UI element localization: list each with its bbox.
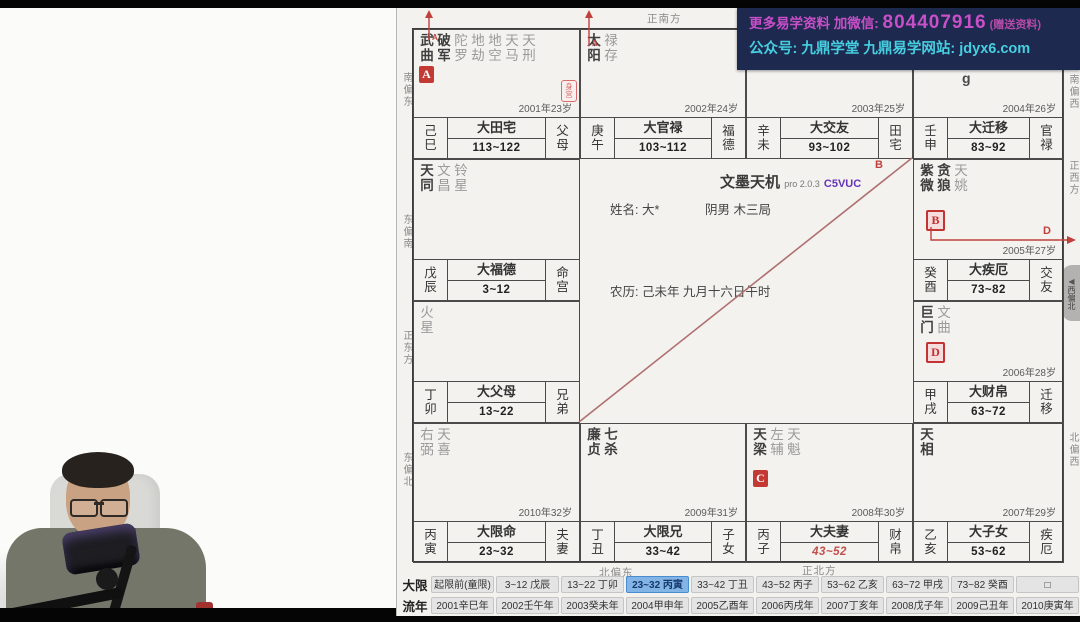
chart-name: 姓名: 大* xyxy=(610,199,659,218)
year-button-8[interactable]: 2009己丑年 xyxy=(951,597,1014,614)
star-天马: 天马 xyxy=(504,33,520,63)
side-nav-bubble[interactable]: ◀ 西偏北 xyxy=(1062,265,1080,321)
palace-name: 疾厄 xyxy=(1029,522,1063,562)
stem-branch: 丁卯 xyxy=(414,382,448,422)
year-age-label: 2006年28岁 xyxy=(1003,364,1056,379)
stem-branch: 丙寅 xyxy=(414,522,448,562)
palace-cell-迁移[interactable]: 巨门文曲D2006年28岁甲戌大财帛63~72迁移 xyxy=(913,301,1064,423)
year-button-5[interactable]: 2006丙戌年 xyxy=(756,597,819,614)
palace-strip: 丙寅大限命23~32夫妻 xyxy=(414,521,579,562)
year-age-label: 2001年23岁 xyxy=(519,100,572,115)
toolbar-row-大限: 大限起限前(童限)3~12 戊辰13~22 丁卯23~32 丙寅33~42 丁丑… xyxy=(399,575,1080,594)
arrow-up-icon xyxy=(425,10,433,18)
presenter-glasses xyxy=(70,499,128,514)
star-list: 火星 xyxy=(419,305,435,335)
year-age-label: 2005年27岁 xyxy=(1003,242,1056,257)
decade-palace: 大夫妻43~52 xyxy=(781,522,878,562)
palace-strip: 庚午大官禄103~112福德 xyxy=(581,117,745,158)
decade-palace: 大交友93~102 xyxy=(781,118,878,158)
star-list: 天相 xyxy=(919,427,935,457)
palace-strip: 辛未大交友93~102田宅 xyxy=(747,117,912,158)
palace-cell-夫妻[interactable]: 右弼天喜2010年32岁丙寅大限命23~32夫妻 xyxy=(413,423,580,563)
star-list: 右弼天喜 xyxy=(419,427,452,457)
stem-branch: 辛未 xyxy=(747,118,781,158)
star-紫微: 紫微 xyxy=(919,163,935,193)
letterbox-cam-bottom xyxy=(0,608,396,616)
star-list: 紫微贪狼天姚 xyxy=(919,163,969,193)
decade-age-range: 43~52 xyxy=(781,543,878,563)
stem-branch: 己巳 xyxy=(414,118,448,158)
year-age-label: 2007年29岁 xyxy=(1003,504,1056,519)
palace-strip: 丁丑大限兄33~42子女 xyxy=(581,521,745,562)
decade-button-1[interactable]: 3~12 戊辰 xyxy=(496,576,559,593)
year-button-7[interactable]: 2008戊子年 xyxy=(886,597,949,614)
decade-palace: 大官禄103~112 xyxy=(615,118,711,158)
decade-palace: 大子女53~62 xyxy=(948,522,1029,562)
app-version: pro 2.0.3 xyxy=(784,179,820,189)
decade-button-8[interactable]: 73~82 癸酉 xyxy=(951,576,1014,593)
decade-palace: 大财帛63~72 xyxy=(948,382,1029,422)
decade-age-range: 93~102 xyxy=(781,139,878,159)
decade-age-range: 83~92 xyxy=(948,139,1029,159)
star-天喜: 天喜 xyxy=(436,427,452,457)
star-天相: 天相 xyxy=(919,427,935,457)
decade-button-5[interactable]: 43~52 丙子 xyxy=(756,576,819,593)
palace-name: 命宫 xyxy=(545,260,579,300)
decade-palace-name: 大限兄 xyxy=(615,522,711,543)
year-age-label: 2010年32岁 xyxy=(519,504,572,519)
star-禄存: 禄存 xyxy=(603,33,619,63)
star-火星: 火星 xyxy=(419,305,435,335)
chevron-left-icon: ◀ xyxy=(1068,277,1074,286)
decade-palace-name: 大田宅 xyxy=(448,118,545,139)
star-list: 廉贞七杀 xyxy=(586,427,619,457)
star-武曲: 武曲 xyxy=(419,33,435,63)
star-天姚: 天姚 xyxy=(953,163,969,193)
decade-palace-name: 大财帛 xyxy=(948,382,1029,403)
arrow-up-icon xyxy=(585,10,593,18)
year-age-label: 2009年31岁 xyxy=(685,504,738,519)
palace-strip: 癸酉大疾厄73~82交友 xyxy=(914,259,1063,300)
star-文昌: 文昌 xyxy=(436,163,452,193)
year-button-9[interactable]: 2010庚寅年 xyxy=(1016,597,1079,614)
year-button-4[interactable]: 2005乙酉年 xyxy=(691,597,754,614)
year-button-1[interactable]: 2002壬午年 xyxy=(496,597,559,614)
chart-gender-bureau: 阴男 木三局 xyxy=(705,199,771,218)
decade-palace-name: 大子女 xyxy=(948,522,1029,543)
toolbar-row-label: 流年 xyxy=(399,596,431,615)
star-右弼: 右弼 xyxy=(419,427,435,457)
palace-strip: 戊辰大福德3~12命宫 xyxy=(414,259,579,300)
body-palace-seal: 身宫 xyxy=(561,80,577,102)
decade-age-range: 63~72 xyxy=(948,403,1029,423)
star-七杀: 七杀 xyxy=(603,427,619,457)
decade-button-0[interactable]: 起限前(童限) xyxy=(431,576,494,593)
star-贪狼: 贪狼 xyxy=(936,163,952,193)
star-地劫: 地劫 xyxy=(470,33,486,63)
decade-button-4[interactable]: 33~42 丁丑 xyxy=(691,576,754,593)
star-破军: 破军 xyxy=(436,33,452,63)
star-list: 天同文昌铃星 xyxy=(419,163,469,193)
star-陀罗: 陀罗 xyxy=(453,33,469,63)
palace-name: 父母 xyxy=(545,118,579,158)
toolbar-row-流年: 流年2001辛巳年2002壬午年2003癸未年2004甲申年2005乙酉年200… xyxy=(399,596,1080,615)
year-button-6[interactable]: 2007丁亥年 xyxy=(821,597,884,614)
star-天刑: 天刑 xyxy=(521,33,537,63)
decade-palace-name: 大福德 xyxy=(448,260,545,281)
decade-button-9[interactable]: □ xyxy=(1016,576,1079,593)
palace-strip: 丙子大夫妻43~52财帛 xyxy=(747,521,912,562)
star-巨门: 巨门 xyxy=(919,305,935,335)
palace-cell-命宫[interactable]: 天同文昌铃星戊辰大福德3~12命宫 xyxy=(413,159,580,301)
banner-line1: 更多易学资料 加微信: 804407916 (赠送资料) xyxy=(749,12,1080,34)
palace-name: 迁移 xyxy=(1029,382,1063,422)
direction-right-2: 正西方 xyxy=(1065,160,1080,196)
banner-line2: 公众号: 九鼎学堂 九鼎易学网站: jdyx6.com xyxy=(749,37,1080,58)
year-age-label: 2008年30岁 xyxy=(852,504,905,519)
decade-palace-name: 大夫妻 xyxy=(781,522,878,543)
star-list: 太阳禄存 xyxy=(586,33,619,63)
chart-lunar-date: 农历: 己未年 九月十六日午时 xyxy=(610,281,770,300)
decade-button-3[interactable]: 23~32 丙寅 xyxy=(626,576,689,593)
stem-branch: 戊辰 xyxy=(414,260,448,300)
decade-palace-name: 大父母 xyxy=(448,382,545,403)
decade-palace: 大父母13~22 xyxy=(448,382,545,422)
decade-age-range: 23~32 xyxy=(448,543,545,563)
star-list: 巨门文曲 xyxy=(919,305,952,335)
letterbox-top xyxy=(0,0,1080,8)
palace-name: 子女 xyxy=(711,522,745,562)
stem-branch: 壬申 xyxy=(914,118,948,158)
decade-palace: 大迁移83~92 xyxy=(948,118,1029,158)
year-age-label: 2003年25岁 xyxy=(852,100,905,115)
wechat-number: 804407916 xyxy=(883,12,987,33)
palace-name: 福德 xyxy=(711,118,745,158)
palace-name: 官禄 xyxy=(1029,118,1063,158)
year-button-0[interactable]: 2001辛巳年 xyxy=(431,597,494,614)
screen: 正南方 北偏东 正北方 南偏东 东偏南 正东方 东偏北 南偏西 正西方 北偏西 … xyxy=(0,0,1080,622)
star-天同: 天同 xyxy=(419,163,435,193)
palace-name: 兄弟 xyxy=(545,382,579,422)
decade-age-range: 103~112 xyxy=(615,139,711,159)
star-天梁: 天梁 xyxy=(752,427,768,457)
palace-name: 交友 xyxy=(1029,260,1063,300)
year-age-label: 2004年26岁 xyxy=(1003,100,1056,115)
watermark-partial: g xyxy=(962,70,971,86)
palace-strip: 壬申大迁移83~92官禄 xyxy=(914,117,1063,158)
year-button-2[interactable]: 2003癸未年 xyxy=(561,597,624,614)
palace-grid: 武曲破军陀罗地劫地空天马天刑A身宫2001年23岁己巳大田宅113~122父母太… xyxy=(412,28,1063,562)
period-toolbar: 大限起限前(童限)3~12 戊辰13~22 丁卯23~32 丙寅33~42 丁丑… xyxy=(399,575,1080,617)
decade-palace-name: 大疾厄 xyxy=(948,260,1029,281)
arrow-right-icon xyxy=(1067,236,1076,244)
decade-palace-name: 大迁移 xyxy=(948,118,1029,139)
stem-branch: 丙子 xyxy=(747,522,781,562)
decade-palace: 大福德3~12 xyxy=(448,260,545,300)
toolbar-row-label: 大限 xyxy=(399,575,431,594)
palace-strip: 己巳大田宅113~122父母 xyxy=(414,117,579,158)
star-地空: 地空 xyxy=(487,33,503,63)
decade-button-6[interactable]: 53~62 乙亥 xyxy=(821,576,884,593)
letterbox-bottom xyxy=(0,616,1080,622)
decade-palace: 大疾厄73~82 xyxy=(948,260,1029,300)
decade-age-range: 53~62 xyxy=(948,543,1029,563)
palace-cell-交友[interactable]: 紫微贪狼天姚B2005年27岁癸酉大疾厄73~82交友 xyxy=(913,159,1064,301)
palace-name: 财帛 xyxy=(878,522,912,562)
decade-age-range: 113~122 xyxy=(448,139,545,159)
webcam-view xyxy=(0,8,396,616)
decade-button-2[interactable]: 13~22 丁卯 xyxy=(561,576,624,593)
star-天魁: 天魁 xyxy=(786,427,802,457)
year-button-3[interactable]: 2004甲申年 xyxy=(626,597,689,614)
palace-name: 田宅 xyxy=(878,118,912,158)
decade-palace: 大田宅113~122 xyxy=(448,118,545,158)
app-title: 文墨天机 pro 2.0.3 C5VUC xyxy=(720,171,861,192)
palace-cell-疾厄[interactable]: 天相2007年29岁乙亥大子女53~62疾厄 xyxy=(913,423,1064,563)
direction-top: 正南方 xyxy=(647,11,682,26)
stem-branch: 丁丑 xyxy=(581,522,615,562)
year-age-label: 2002年24岁 xyxy=(685,100,738,115)
palace-cell-父母[interactable]: 武曲破军陀罗地劫地空天马天刑A身宫2001年23岁己巳大田宅113~122父母 xyxy=(413,29,580,159)
palace-cell-子女[interactable]: 廉贞七杀2009年31岁丁丑大限兄33~42子女 xyxy=(580,423,746,563)
stem-branch: 甲戌 xyxy=(914,382,948,422)
bubble-label: 西偏北 xyxy=(1066,286,1077,310)
star-list: 天梁左辅天魁 xyxy=(752,427,802,457)
decade-palace-name: 大交友 xyxy=(781,118,878,139)
star-太阳: 太阳 xyxy=(586,33,602,63)
star-list: 武曲破军陀罗地劫地空天马天刑 xyxy=(419,33,537,63)
palace-strip: 乙亥大子女53~62疾厄 xyxy=(914,521,1063,562)
ziwei-chart-board: 正南方 北偏东 正北方 南偏东 东偏南 正东方 东偏北 南偏西 正西方 北偏西 … xyxy=(396,8,1080,616)
palace-cell-财帛[interactable]: 天梁左辅天魁C2008年30岁丙子大夫妻43~52财帛 xyxy=(746,423,913,563)
star-铃星: 铃星 xyxy=(453,163,469,193)
decade-age-range: 3~12 xyxy=(448,281,545,301)
palace-cell-福德[interactable]: 太阳禄存2002年24岁庚午大官禄103~112福德 xyxy=(580,29,746,159)
center-info-panel: 文墨天机 pro 2.0.3 C5VUC 姓名: 大* 阴男 木三局 农历: 己… xyxy=(580,159,913,423)
promo-banner: 更多易学资料 加微信: 804407916 (赠送资料) 公众号: 九鼎学堂 九… xyxy=(737,8,1080,70)
direction-right-3: 北偏西 xyxy=(1065,432,1080,468)
sihua-badge-D: D xyxy=(926,342,945,363)
decade-palace: 大限兄33~42 xyxy=(615,522,711,562)
direction-right-1: 南偏西 xyxy=(1065,74,1080,110)
sihua-badge-A: A xyxy=(419,66,434,83)
decade-palace: 大限命23~32 xyxy=(448,522,545,562)
stem-branch: 庚午 xyxy=(581,118,615,158)
stem-branch: 癸酉 xyxy=(914,260,948,300)
decade-button-7[interactable]: 63~72 甲戌 xyxy=(886,576,949,593)
mic-boom-joint xyxy=(96,568,118,590)
decade-palace-name: 大官禄 xyxy=(615,118,711,139)
palace-cell-兄弟[interactable]: 火星丁卯大父母13~22兄弟 xyxy=(413,301,580,423)
palace-strip: 丁卯大父母13~22兄弟 xyxy=(414,381,579,422)
star-廉贞: 廉贞 xyxy=(586,427,602,457)
decade-age-range: 33~42 xyxy=(615,543,711,563)
app-edition: C5VUC xyxy=(824,178,861,190)
stem-branch: 乙亥 xyxy=(914,522,948,562)
decade-palace-name: 大限命 xyxy=(448,522,545,543)
presenter-hair xyxy=(62,452,134,488)
sihua-badge-B: B xyxy=(926,210,945,231)
palace-name: 夫妻 xyxy=(545,522,579,562)
star-左辅: 左辅 xyxy=(769,427,785,457)
decade-age-range: 73~82 xyxy=(948,281,1029,301)
palace-strip: 甲戌大财帛63~72迁移 xyxy=(914,381,1063,422)
sihua-badge-C: C xyxy=(753,470,768,487)
star-文曲: 文曲 xyxy=(936,305,952,335)
decade-age-range: 13~22 xyxy=(448,403,545,423)
